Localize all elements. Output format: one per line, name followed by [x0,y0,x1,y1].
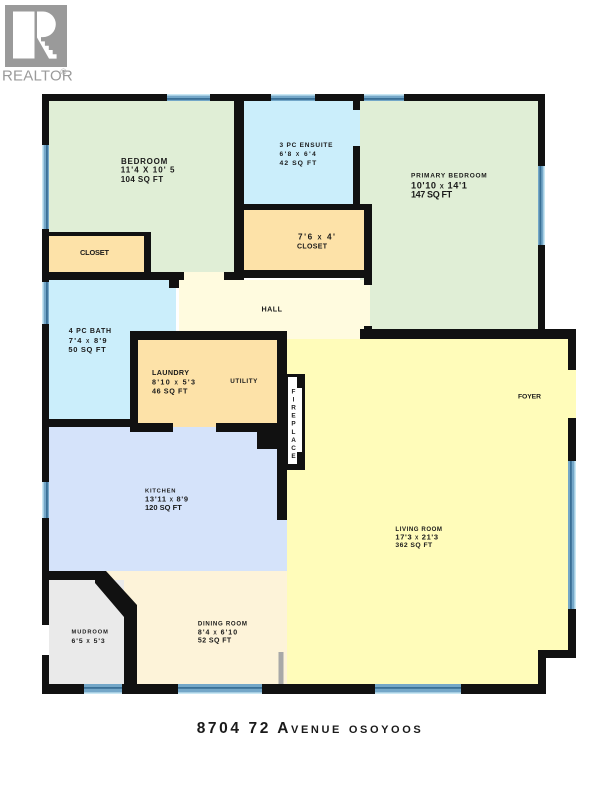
svg-text:®: ® [61,68,67,77]
svg-text:50 SQ FT: 50 SQ FT [68,345,106,354]
svg-text:PRIMARY BEDROOM: PRIMARY BEDROOM [411,172,487,179]
svg-text:E: E [291,413,296,420]
svg-text:13'11 x 8'9: 13'11 x 8'9 [145,494,188,503]
svg-text:4 PC BATH: 4 PC BATH [69,328,111,335]
svg-text:42 SQ FT: 42 SQ FT [280,160,318,167]
svg-text:FOYER: FOYER [518,394,541,401]
svg-text:120 SQ FT: 120 SQ FT [145,503,182,512]
svg-text:HALL: HALL [262,305,283,314]
svg-text:17'3 x 21'3: 17'3 x 21'3 [395,532,438,541]
svg-text:DINING ROOM: DINING ROOM [198,621,247,628]
svg-text:P: P [291,421,296,428]
svg-text:C: C [291,445,296,452]
svg-text:11'4 X 10' 5: 11'4 X 10' 5 [121,166,175,175]
svg-text:CLOSET: CLOSET [80,248,109,257]
svg-text:MUDROOM: MUDROOM [72,630,109,636]
svg-text:E: E [291,453,296,460]
svg-text:362 SQ FT: 362 SQ FT [395,542,433,549]
svg-text:6'5 x 5'3: 6'5 x 5'3 [72,638,105,645]
svg-text:CLOSET: CLOSET [297,243,328,250]
svg-text:3 PC ENSUITE: 3 PC ENSUITE [280,142,334,149]
svg-text:6'8 x 6'4: 6'8 x 6'4 [280,151,317,158]
svg-text:147 SQ FT: 147 SQ FT [411,190,453,200]
svg-text:52 SQ FT: 52 SQ FT [198,638,232,645]
svg-text:R: R [291,405,296,412]
svg-text:UTILITY: UTILITY [230,378,258,385]
svg-text:LAUNDRY: LAUNDRY [152,368,189,377]
svg-text:7'4 x 8'9: 7'4 x 8'9 [69,336,107,345]
svg-text:8'4 x 6'10: 8'4 x 6'10 [198,629,237,636]
svg-text:104 SQ FT: 104 SQ FT [121,175,164,184]
svg-text:F: F [292,388,296,395]
svg-text:I: I [293,396,295,403]
svg-text:A: A [291,437,296,444]
svg-text:L: L [292,429,296,436]
svg-text:46 SQ FT: 46 SQ FT [152,387,188,396]
svg-text:8704 72 Avenue osoyoos: 8704 72 Avenue osoyoos [197,720,424,737]
